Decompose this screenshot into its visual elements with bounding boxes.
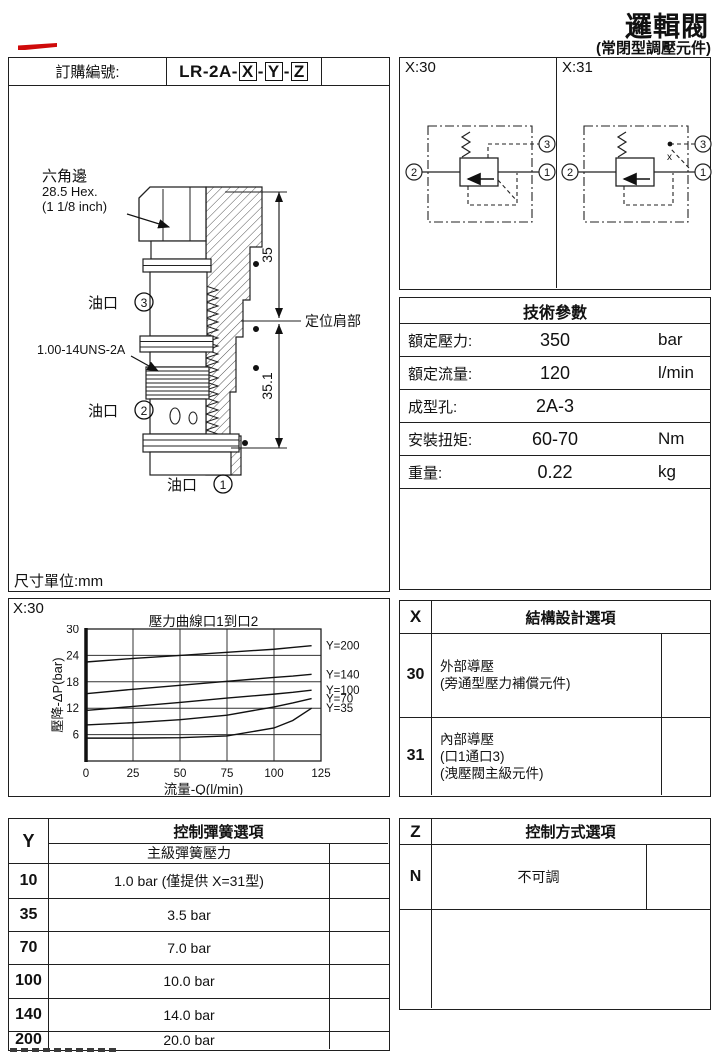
table-row: 額定壓力: 350 bar	[400, 324, 710, 357]
schematic-panel: X:30 X:31 2 1 3	[399, 57, 711, 290]
y-options-subtitle: 主級彈簧壓力	[49, 843, 329, 863]
port3-number: 3	[141, 296, 148, 310]
y-options-title: 控制彈簧選項	[49, 819, 388, 843]
y-options-table: Y 控制彈簧選項 主級彈簧壓力 10 1.0 bar (僅提供 X=31型) 3…	[8, 818, 390, 1051]
series-label: Y=35	[326, 703, 353, 715]
y-option-code: 35	[9, 898, 48, 931]
tech-label: 重量:	[408, 456, 442, 488]
tech-value: 0.22	[480, 456, 630, 488]
x-col-header: X	[400, 601, 431, 633]
dim-35-1: 35.1	[259, 372, 275, 399]
order-code-sep1: -	[258, 62, 264, 82]
chart-panel: X:30 壓力曲線口1到口2 0255075100125612182430流量-…	[8, 598, 390, 797]
z-options-table: Z 控制方式選項 N 不可調	[399, 818, 711, 1010]
x31-port2: 2	[567, 167, 573, 179]
clipped-footer-text	[10, 1048, 118, 1052]
units-note: 尺寸單位:mm	[14, 570, 103, 591]
tech-unit: l/min	[658, 357, 694, 389]
series-line	[86, 690, 312, 710]
x-option-line: (旁通型壓力補償元件)	[440, 675, 658, 692]
y-option-value: 20.0 bar	[49, 1031, 329, 1049]
tech-label: 額定流量:	[408, 357, 472, 389]
hydraulic-symbol-x30: 2 1 3	[400, 72, 556, 287]
table-row: 成型孔: 2A-3	[400, 390, 710, 423]
hex-label-cn: 六角邊	[42, 168, 87, 185]
x30-port2: 2	[411, 167, 417, 179]
series-line	[86, 699, 312, 725]
x-option-code: 30	[400, 633, 431, 717]
chart-section-label: X:30	[13, 600, 44, 617]
hex-head	[139, 187, 206, 241]
y-tick-label: 12	[66, 703, 79, 715]
x-options-title: 結構設計選項	[432, 601, 709, 633]
tech-unit: bar	[658, 324, 683, 356]
oring-dot	[253, 365, 259, 371]
page-subtitle: (常閉型調壓元件)	[596, 37, 711, 58]
x31-port1: 1	[700, 167, 706, 179]
x30-port1: 1	[544, 167, 550, 179]
x-option-desc: 內部導壓 (口1通口3) (洩壓閥主級元件)	[440, 717, 658, 795]
divider	[661, 633, 662, 795]
z-option-code: N	[400, 844, 431, 909]
x-tick-label: 0	[83, 768, 89, 780]
series-line	[86, 674, 312, 693]
y-col-header: Y	[9, 819, 48, 863]
series-line	[86, 646, 312, 662]
x31-port3: 3	[700, 139, 706, 151]
x30-port3: 3	[544, 139, 550, 151]
x-tick-label: 50	[174, 768, 187, 780]
table-row: 重量: 0.22 kg	[400, 456, 710, 489]
hex-inch-label: (1 1/8 inch)	[42, 199, 107, 214]
datasheet-page: 邏輯閥 (常閉型調壓元件) 訂購編號: LR-2A-X-Y-Z	[0, 0, 713, 1053]
y-tick-label: 6	[73, 730, 79, 742]
oring-dot	[242, 440, 248, 446]
order-label: 訂購編號:	[55, 61, 119, 82]
y-option-code: 10	[9, 863, 48, 898]
order-code-y: Y	[265, 62, 283, 82]
port1-label: 油口	[167, 477, 197, 494]
x-tick-label: 75	[221, 768, 234, 780]
x-axis-label: 流量-Q(l/min)	[164, 782, 244, 795]
tech-label: 額定壓力:	[408, 324, 472, 356]
divider	[400, 909, 710, 910]
x-option-line: (洩壓閥主級元件)	[440, 765, 658, 782]
valve-cross-section-drawing: 35 35.1 定位肩部 六角邊 28.5 Hex. (1 1/8 inch) …	[9, 86, 388, 566]
tech-unit: Nm	[658, 423, 684, 455]
x-tick-label: 125	[311, 768, 330, 780]
y-tick-label: 30	[66, 625, 79, 636]
y-tick-label: 24	[66, 650, 79, 662]
x31-pilot-mark: x	[667, 152, 672, 163]
x-option-line: 外部導壓	[440, 658, 658, 675]
x-option-code: 31	[400, 717, 431, 795]
order-code-cell: LR-2A-X-Y-Z	[167, 58, 321, 85]
order-number-row: 訂購編號: LR-2A-X-Y-Z	[9, 58, 389, 86]
tech-params-table: 技術參數 額定壓力: 350 bar 額定流量: 120 l/min 成型孔: …	[399, 297, 711, 590]
table-row: 額定流量: 120 l/min	[400, 357, 710, 390]
order-code-x: X	[239, 62, 257, 82]
x-options-table: X 結構設計選項 30 外部導壓 (旁通型壓力補償元件) 31 內部導壓 (口1…	[399, 600, 711, 797]
order-code-z: Z	[291, 62, 308, 82]
port1-number: 1	[220, 478, 227, 492]
port2-number: 2	[141, 404, 148, 418]
red-wedge-decoration	[18, 43, 57, 50]
y-option-value: 1.0 bar (僅提供 X=31型)	[49, 863, 329, 898]
z-option-value: 不可調	[432, 844, 645, 909]
x-option-desc: 外部導壓 (旁通型壓力補償元件)	[440, 633, 658, 717]
order-code-prefix: LR-2A-	[179, 62, 238, 82]
order-code-sep2: -	[284, 62, 290, 82]
series-label: Y=200	[326, 641, 360, 653]
x-option-line: (口1通口3)	[440, 748, 658, 765]
oring-dot	[253, 326, 259, 332]
port3-label: 油口	[88, 295, 118, 312]
hex-size-label: 28.5 Hex.	[42, 184, 98, 199]
x-tick-label: 25	[127, 768, 140, 780]
y-option-value: 14.0 bar	[49, 998, 329, 1031]
hydraulic-symbol-x31: x 2 1 3	[556, 72, 712, 287]
tech-label: 安裝扭矩:	[408, 423, 472, 455]
y-axis-label: 壓降-ΔP(bar)	[50, 657, 65, 732]
y-option-value: 3.5 bar	[49, 898, 329, 931]
drawing-panel: 訂購編號: LR-2A-X-Y-Z	[8, 57, 390, 592]
x-tick-label: 100	[264, 768, 283, 780]
divider	[646, 844, 647, 909]
tech-params-title: 技術參數	[400, 298, 710, 324]
y-option-value: 10.0 bar	[49, 964, 329, 998]
tech-value: 2A-3	[480, 390, 630, 422]
x-option-line: 內部導壓	[440, 731, 658, 748]
tech-unit: kg	[658, 456, 676, 488]
y-option-value: 7.0 bar	[49, 931, 329, 964]
table-row: 安裝扭矩: 60-70 Nm	[400, 423, 710, 456]
y-option-code: 70	[9, 931, 48, 964]
tech-value: 60-70	[480, 423, 630, 455]
thread-label: 1.00-14UNS-2A	[37, 343, 126, 357]
tech-value: 120	[480, 357, 630, 389]
y-option-code: 200	[9, 1031, 48, 1049]
y-tick-label: 18	[66, 677, 79, 689]
pressure-curve-chart: 0255075100125612182430流量-Q(l/min)壓降-ΔP(b…	[9, 625, 388, 795]
tech-label: 成型孔:	[408, 390, 457, 422]
z-col-header: Z	[400, 819, 431, 844]
y-option-code: 140	[9, 998, 48, 1031]
port2-label: 油口	[88, 403, 118, 420]
shoulder-label: 定位肩部	[305, 313, 361, 329]
y-option-code: 100	[9, 964, 48, 998]
divider	[321, 58, 322, 86]
series-label: Y=140	[326, 669, 360, 681]
z-options-title: 控制方式選項	[432, 819, 709, 844]
order-label-cell: 訂購編號:	[9, 58, 166, 85]
dim-35: 35	[259, 247, 275, 263]
tech-value: 350	[480, 324, 630, 356]
divider	[329, 843, 330, 1049]
